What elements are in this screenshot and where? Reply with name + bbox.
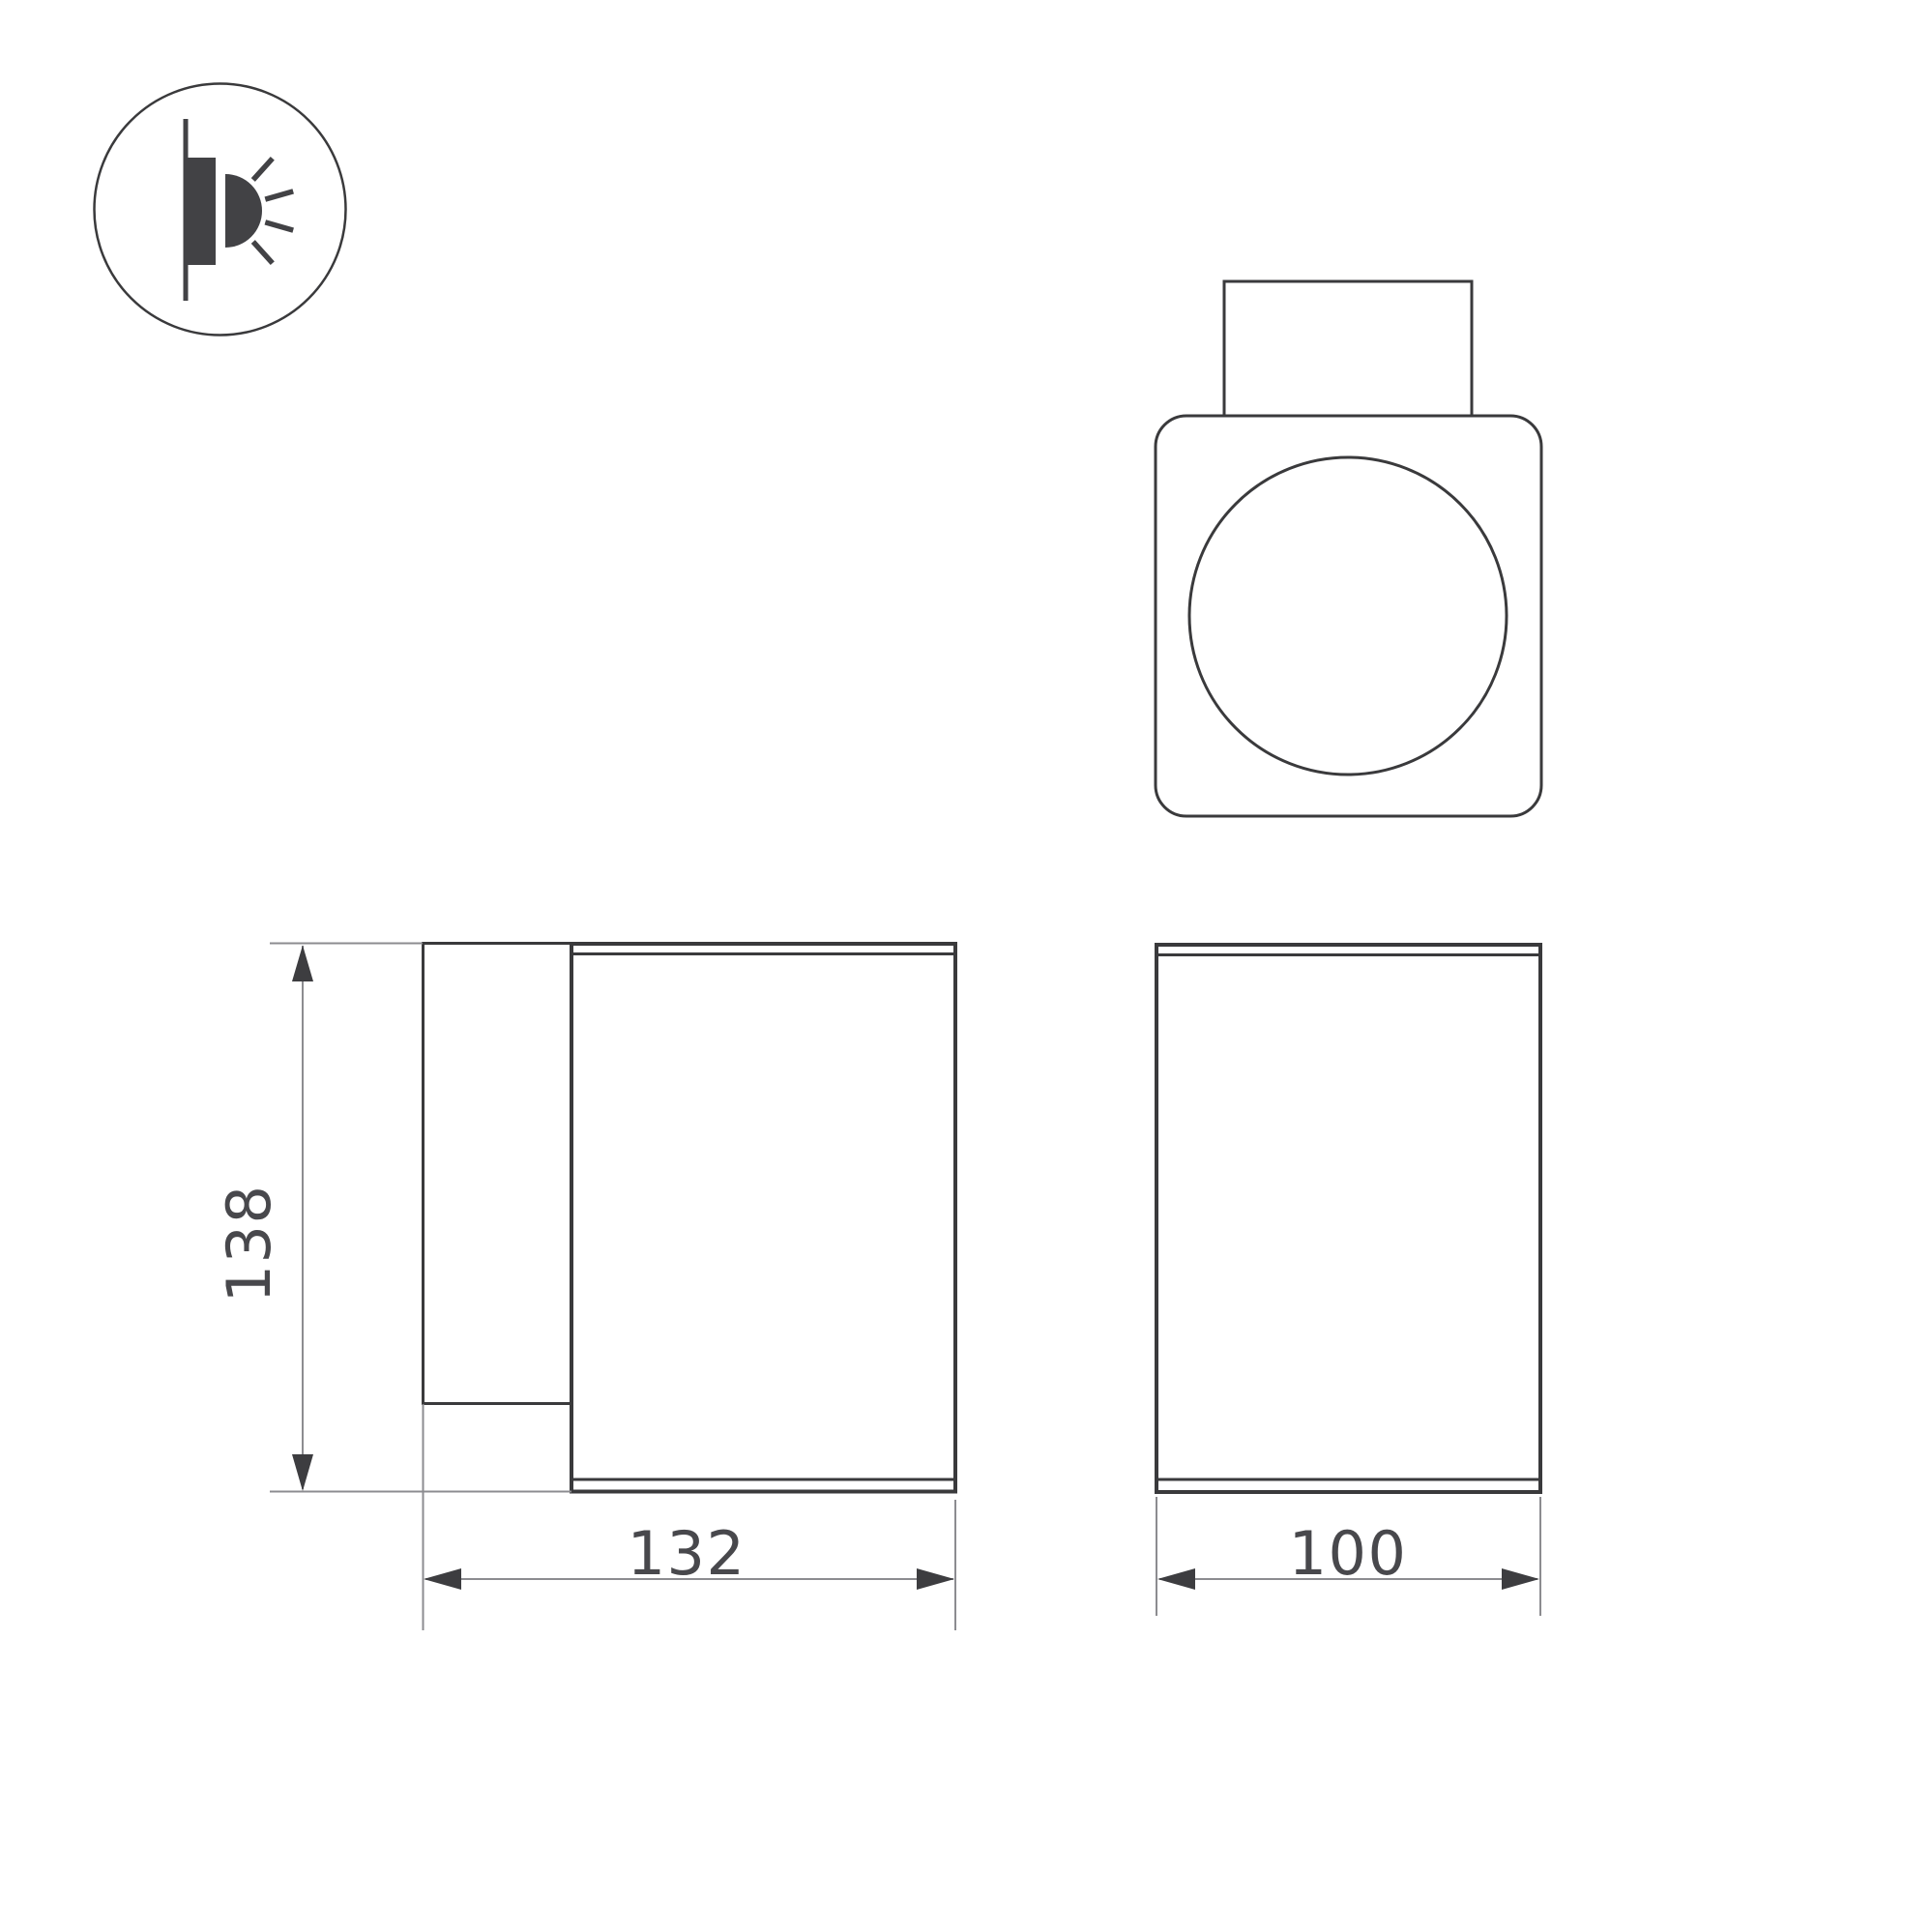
depth-dim-label: 132 xyxy=(628,1518,746,1589)
top-view-mount-bracket xyxy=(1224,281,1472,416)
depth-dim-arrow-left-icon xyxy=(424,1568,461,1590)
height-dim-arrow-up-icon xyxy=(292,946,313,982)
technical-drawing-sheet: 138 132 100 xyxy=(0,0,1932,1932)
front-view xyxy=(1156,945,1540,1492)
height-dim-label: 138 xyxy=(214,1185,284,1303)
height-dim-arrow-down-icon xyxy=(292,1454,313,1491)
width-dimension: 100 xyxy=(1156,1497,1540,1616)
icon-circle-outline xyxy=(95,84,346,336)
top-view xyxy=(1156,281,1541,816)
wall-light-icon xyxy=(95,84,346,336)
side-view-back-plate xyxy=(424,944,572,1404)
icon-light-ray-3 xyxy=(265,222,293,230)
width-dim-label: 100 xyxy=(1289,1518,1408,1589)
width-dim-arrow-right-icon xyxy=(1502,1568,1539,1590)
top-view-body xyxy=(1156,416,1541,816)
side-view-body xyxy=(571,944,955,1492)
icon-light-ray-4 xyxy=(253,242,273,263)
side-view xyxy=(424,944,956,1492)
depth-dim-arrow-right-icon xyxy=(917,1568,954,1590)
icon-light-beam xyxy=(225,174,262,248)
icon-light-ray-1 xyxy=(253,159,273,180)
icon-fixture-body xyxy=(186,158,216,265)
width-dim-arrow-left-icon xyxy=(1157,1568,1195,1590)
icon-light-ray-2 xyxy=(265,191,293,199)
luminaire-dimension-drawing: 138 132 100 xyxy=(0,0,1932,1932)
front-view-body xyxy=(1156,945,1540,1492)
